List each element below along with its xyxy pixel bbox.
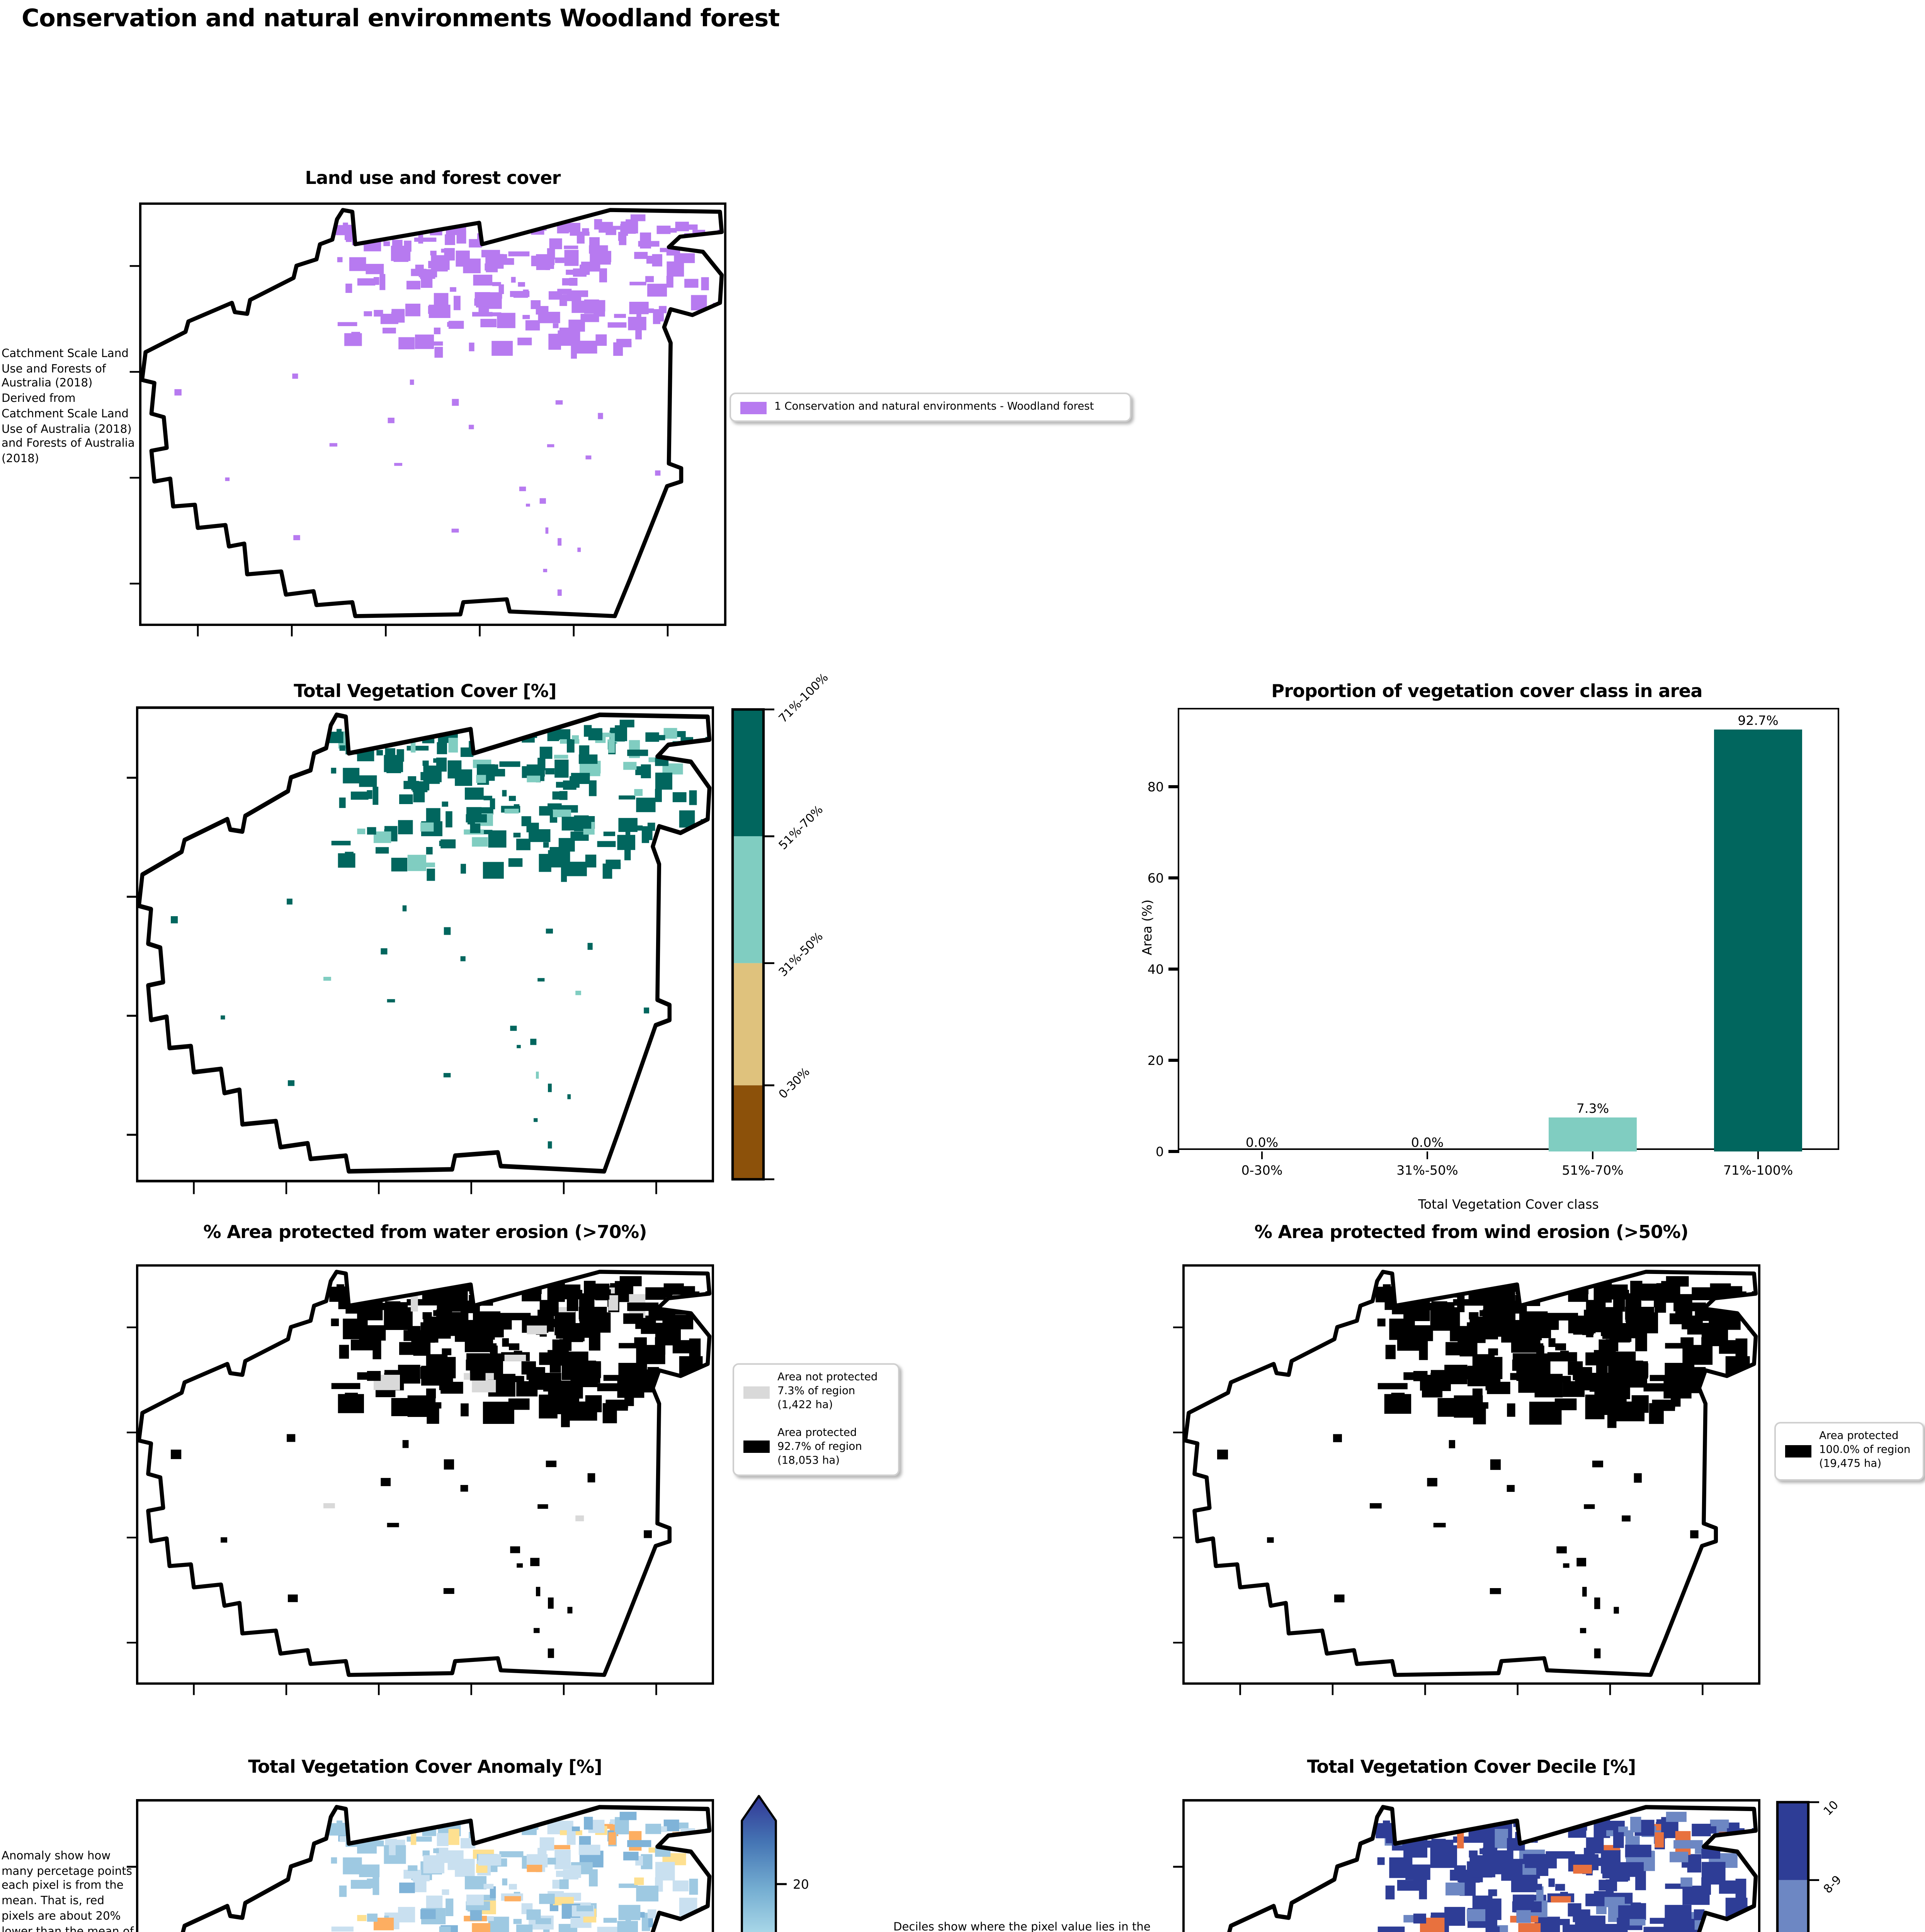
wind-protected-swatch-icon: [1785, 1445, 1811, 1457]
wind-map: [1182, 1264, 1760, 1685]
colorbar-tick-label: 31%-50%: [776, 930, 826, 979]
water-legend-row-not-protected: Area not protected 7.3% of region (1,422…: [743, 1371, 889, 1413]
bar-value-label: 92.7%: [1712, 712, 1804, 728]
water-map: [136, 1264, 714, 1685]
x-tick-label: 0-30%: [1179, 1162, 1345, 1178]
y-tick: [1168, 786, 1179, 788]
wind-legend: Area protected 100.0% of region (19,475 …: [1774, 1422, 1924, 1480]
decile-note: Deciles show where the pixel value lies …: [893, 1920, 1159, 1932]
colorbar-tick-label: 51%-70%: [776, 803, 826, 852]
bar-value-label: 7.3%: [1546, 1101, 1639, 1117]
chart-xlabel: Total Vegetation Cover class: [1178, 1196, 1839, 1212]
landuse-title: Land use and forest cover: [139, 167, 726, 189]
bar: [1549, 1118, 1637, 1151]
vegcover-map: [136, 706, 714, 1182]
water-not-protected-swatch-icon: [743, 1386, 770, 1398]
bar-value-label: 0.0%: [1381, 1134, 1474, 1150]
landuse-legend-label: 1 Conservation and natural environments …: [774, 400, 1094, 415]
water-protected-swatch-icon: [743, 1441, 770, 1454]
y-tick: [1168, 968, 1179, 970]
colorbar-tick-label: 0-30%: [776, 1065, 813, 1102]
wind-title: % Area protected from wind erosion (>50%…: [1182, 1221, 1760, 1243]
decile-title: Total Vegetation Cover Decile [%]: [1182, 1756, 1760, 1777]
x-tick-label: 71%-100%: [1675, 1162, 1841, 1178]
y-tick-label: 20: [1124, 1052, 1164, 1067]
colorbar-tick-label: 8-9: [1821, 1873, 1844, 1896]
anomaly-note: Anomaly show how many percetage points e…: [2, 1849, 134, 1932]
decile-map: [1182, 1799, 1760, 1932]
x-tick-label: 51%-70%: [1510, 1162, 1675, 1178]
y-tick: [1168, 877, 1179, 879]
x-tick: [1757, 1151, 1759, 1159]
colorbar-tick-label: 71%-100%: [776, 671, 831, 726]
anomaly-title: Total Vegetation Cover Anomaly [%]: [136, 1756, 714, 1777]
y-tick-label: 80: [1124, 778, 1164, 794]
x-tick: [1261, 1151, 1263, 1159]
chart-ylabel: Area (%): [1139, 881, 1155, 974]
proportion-bar-chart: 0204060800.0%0-30%0.0%31%-50%7.3%51%-70%…: [1178, 708, 1839, 1150]
wind-protected-label: Area protected 100.0% of region (19,475 …: [1819, 1430, 1913, 1472]
y-tick-label: 60: [1124, 869, 1164, 885]
water-protected-label: Area protected 92.7% of region (18,053 h…: [777, 1426, 889, 1468]
anomaly-colorbar: 20100−10−20: [736, 1793, 875, 1932]
report-page: Conservation and natural environments Wo…: [0, 0, 1925, 1932]
x-tick-label: 31%-50%: [1345, 1162, 1510, 1178]
bar-value-label: 0.0%: [1216, 1134, 1308, 1150]
y-tick: [1168, 1150, 1179, 1153]
y-tick-label: 0: [1124, 1143, 1164, 1158]
landuse-legend-swatch-icon: [740, 401, 767, 413]
colorbar-tick-label: 10: [1821, 1798, 1841, 1818]
decile-colorbar: 108-94-72-31: [1774, 1799, 1923, 1932]
x-tick: [1426, 1151, 1428, 1159]
y-tick: [1168, 1059, 1179, 1061]
water-not-protected-label: Area not protected 7.3% of region (1,422…: [777, 1371, 889, 1413]
chart-title: Proportion of vegetation cover class in …: [1156, 680, 1818, 702]
anomaly-colorbar-tick-label: 20: [793, 1877, 809, 1892]
vegcover-colorbar: 71%-100%51%-70%31%-50%0-30%: [730, 706, 900, 1182]
landuse-legend: 1 Conservation and natural environments …: [730, 393, 1131, 422]
water-legend: Area not protected 7.3% of region (1,422…: [733, 1363, 900, 1476]
landuse-side-note: Catchment Scale Land Use and Forests of …: [2, 346, 138, 466]
anomaly-map: [136, 1799, 714, 1932]
page-title: Conservation and natural environments Wo…: [22, 5, 1876, 32]
y-tick-label: 40: [1124, 961, 1164, 976]
landuse-map: [139, 202, 726, 626]
vegcover-title: Total Vegetation Cover [%]: [136, 680, 714, 702]
bar: [1714, 729, 1802, 1151]
water-legend-row-protected: Area protected 92.7% of region (18,053 h…: [743, 1426, 889, 1468]
x-tick: [1592, 1151, 1594, 1159]
water-title: % Area protected from water erosion (>70…: [136, 1221, 714, 1243]
